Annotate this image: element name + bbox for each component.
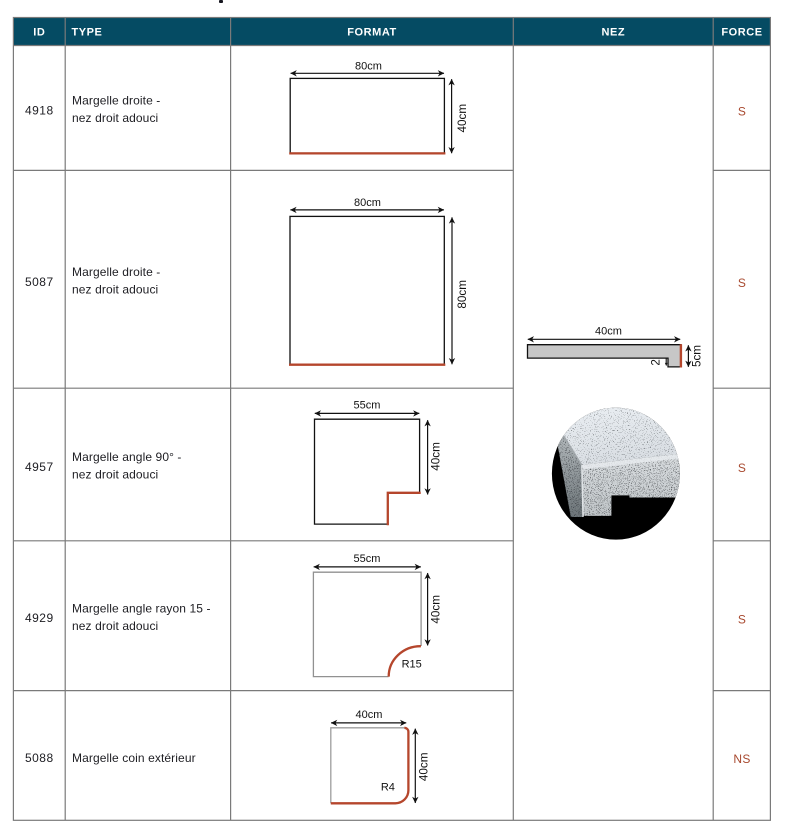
svg-text:40cm: 40cm (430, 442, 443, 471)
svg-text:Margelle angle rayon 15 -: Margelle angle rayon 15 - (72, 601, 211, 615)
svg-text:Margelle droite -: Margelle droite - (72, 94, 160, 108)
svg-text:40cm: 40cm (429, 595, 442, 624)
svg-text:nez droit adouci: nez droit adouci (72, 111, 158, 125)
svg-text:40cm: 40cm (456, 104, 469, 133)
svg-text:R4: R4 (381, 781, 395, 793)
svg-text:S: S (738, 105, 746, 119)
svg-text:NEZ: NEZ (601, 27, 625, 39)
svg-text:5087: 5087 (25, 275, 54, 289)
svg-text:nez droit adouci: nez droit adouci (72, 468, 158, 482)
svg-text:5088: 5088 (25, 751, 54, 765)
svg-text:S: S (738, 612, 746, 626)
svg-text:ID: ID (33, 27, 45, 39)
svg-text:55cm: 55cm (354, 399, 381, 411)
svg-text:Margelle coin extérieur: Margelle coin extérieur (72, 751, 196, 765)
svg-text:55cm: 55cm (354, 553, 381, 565)
svg-text:FORMAT: FORMAT (347, 27, 397, 39)
svg-text:S: S (738, 276, 746, 290)
svg-text:4957: 4957 (25, 460, 54, 474)
svg-text:40cm: 40cm (595, 326, 622, 338)
svg-text:40cm: 40cm (356, 709, 383, 721)
svg-text:40cm: 40cm (417, 753, 430, 782)
svg-text:80cm: 80cm (355, 61, 382, 73)
svg-text:4918: 4918 (25, 104, 54, 118)
svg-text:4929: 4929 (25, 611, 54, 625)
svg-text:NS: NS (733, 752, 750, 766)
svg-text:2: 2 (650, 359, 663, 366)
svg-text:R15: R15 (402, 658, 422, 670)
svg-text:5cm: 5cm (691, 345, 704, 367)
svg-text:Margelle droite -: Margelle droite - (72, 265, 160, 279)
svg-text:nez droit adouci: nez droit adouci (72, 282, 158, 296)
svg-text:80cm: 80cm (456, 280, 469, 309)
svg-text:TYPE: TYPE (72, 27, 103, 39)
svg-text:80cm: 80cm (354, 197, 381, 209)
svg-text:S: S (738, 461, 746, 475)
svg-text:FORCE: FORCE (721, 27, 762, 39)
svg-text:nez droit adouci: nez droit adouci (72, 619, 158, 633)
svg-text:Margelle angle 90° -: Margelle angle 90° - (72, 450, 182, 464)
